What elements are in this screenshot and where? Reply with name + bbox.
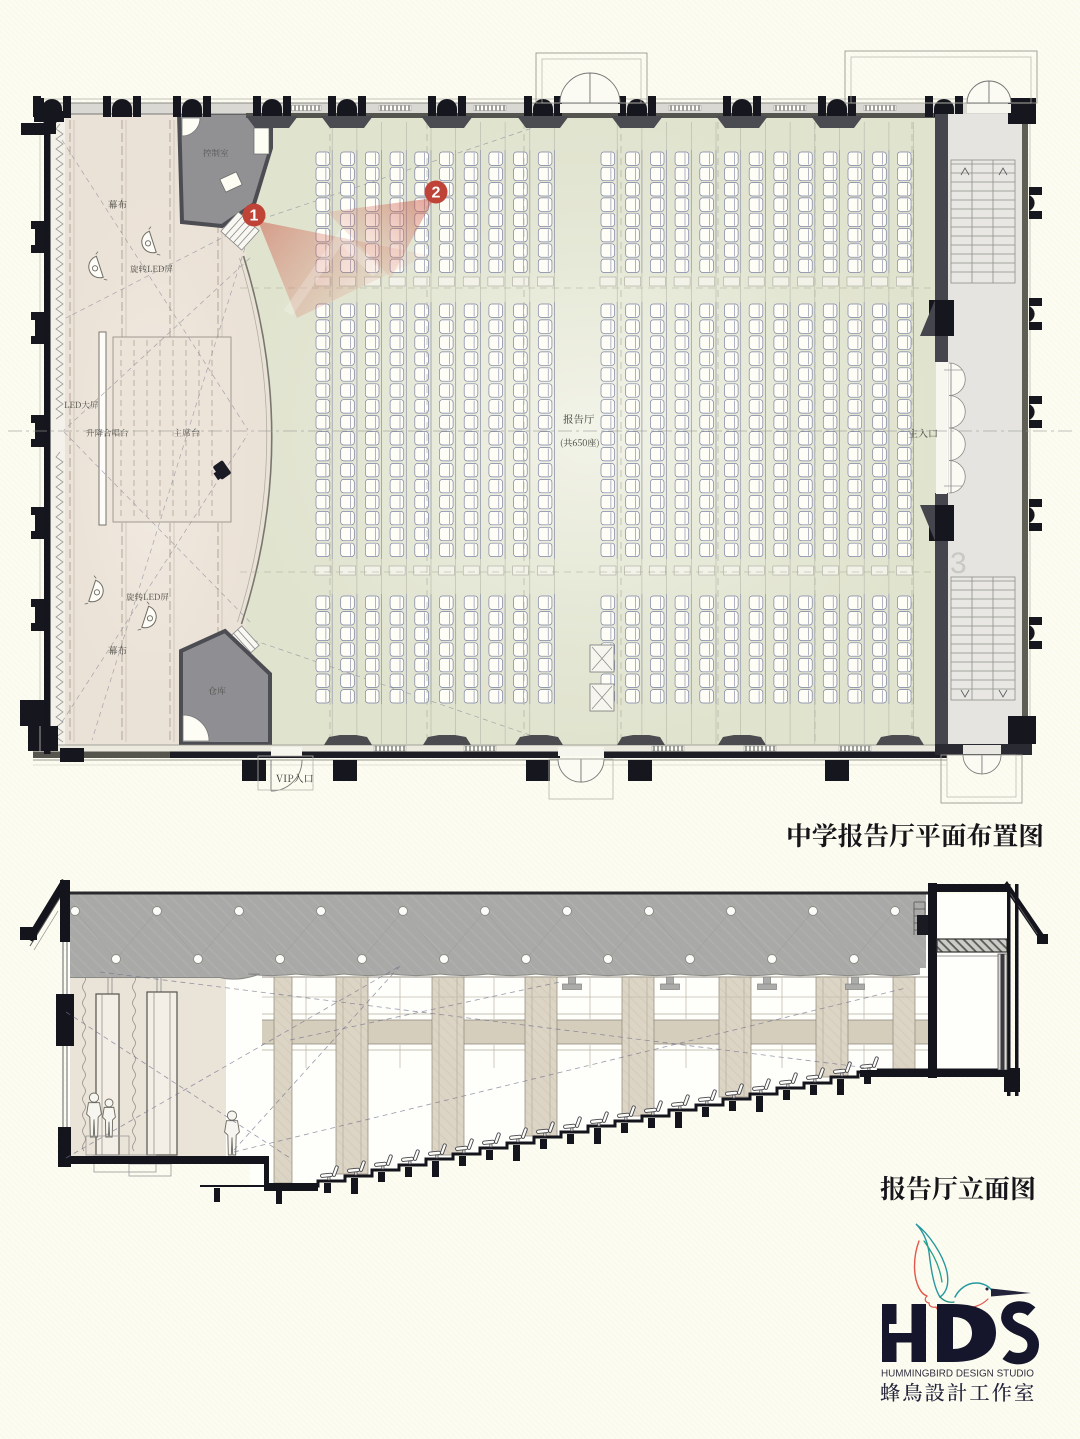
svg-text:1: 1 <box>250 208 259 225</box>
svg-text:3: 3 <box>950 547 967 580</box>
svg-text:2: 2 <box>432 185 441 202</box>
svg-text:HUMMINGBIRD DESIGN STUDIO: HUMMINGBIRD DESIGN STUDIO <box>881 1368 1034 1380</box>
